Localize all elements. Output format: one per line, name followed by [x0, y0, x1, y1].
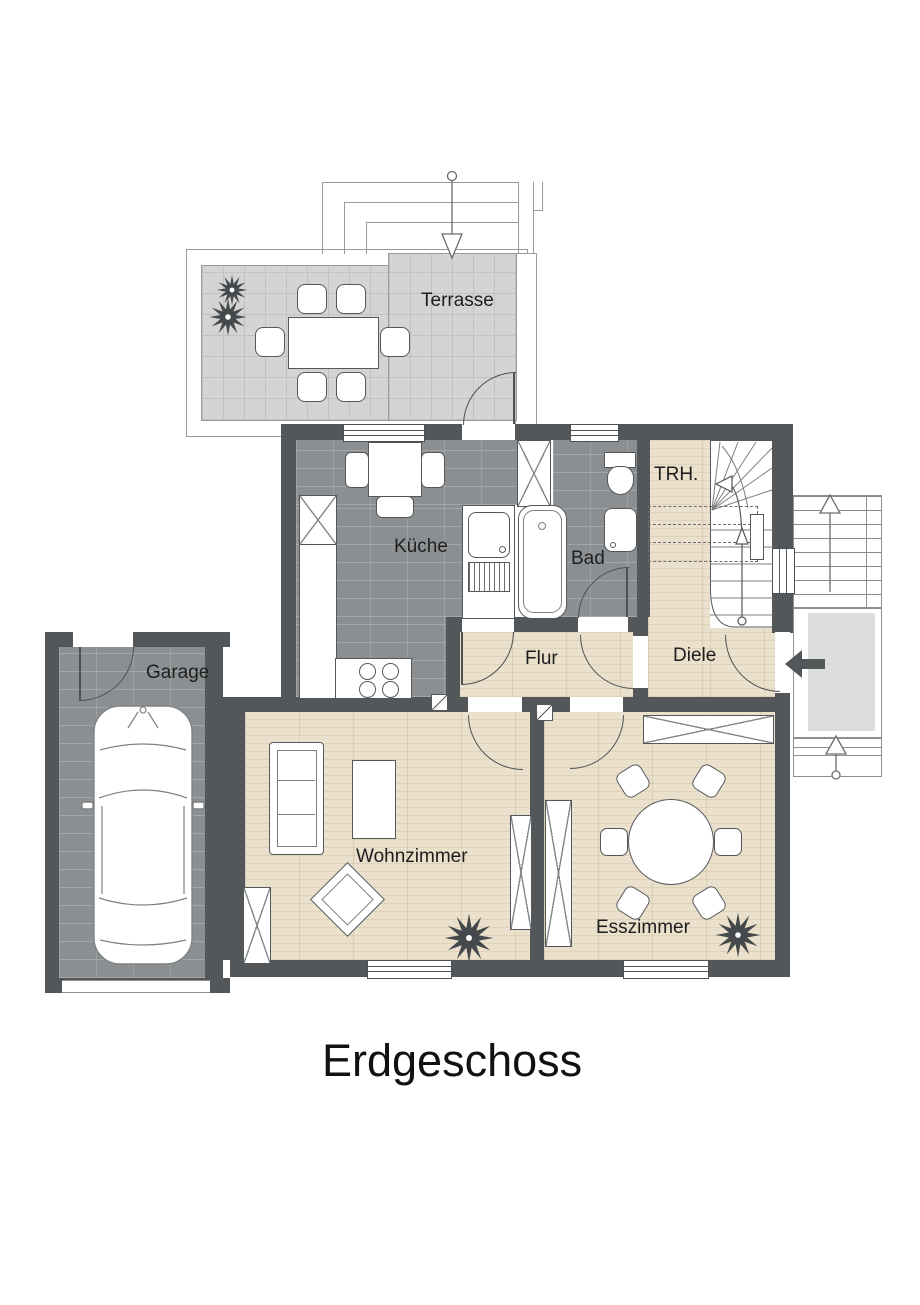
- bad-door-opening: [578, 617, 628, 632]
- page-title: Erdgeschoss: [322, 1035, 582, 1087]
- bathtub-drain: [538, 522, 546, 530]
- bathroom-sink: [604, 508, 637, 552]
- bathroom-sink-drain: [610, 542, 616, 548]
- wall-junction-marker: [431, 694, 448, 711]
- kitchen-tall-cabinet: [299, 495, 337, 545]
- dishwasher: [468, 562, 510, 592]
- room-label-diele: Diele: [673, 645, 716, 667]
- wall: [45, 632, 59, 993]
- kitchen-bad-cabinet: [517, 440, 551, 507]
- exterior-stairs-up-arrow-icon: [816, 492, 844, 596]
- floor-plan-canvas: Terrasse Küche Bad TRH. Diele Flur Garag…: [0, 0, 920, 1305]
- room-label-wohnzimmer: Wohnzimmer: [356, 846, 468, 868]
- interior-stairs-up-arrow-icon: [716, 476, 748, 625]
- wall: [530, 712, 544, 960]
- terrace-steps-direction-arrow-icon: [435, 170, 469, 264]
- plant-icon: [712, 910, 764, 960]
- dining-room-cabinet: [545, 800, 572, 947]
- wall: [223, 697, 245, 960]
- stove-burner: [359, 663, 376, 680]
- terrace-step-edge: [542, 182, 543, 210]
- esszimmer-window: [623, 960, 709, 979]
- sofa-seat: [277, 750, 317, 847]
- terrace-chair: [336, 284, 366, 314]
- sideboard: [643, 715, 774, 744]
- toilet: [607, 466, 634, 495]
- terrace-chair: [297, 284, 327, 314]
- dining-chair: [600, 828, 628, 856]
- bad-window: [570, 424, 619, 442]
- stove-burner: [359, 681, 376, 698]
- room-label-flur: Flur: [525, 648, 558, 670]
- terrace-chair: [255, 327, 285, 357]
- wohnzimmer-door-opening: [468, 697, 522, 712]
- sofa-cushion-line: [277, 814, 315, 815]
- room-label-bad: Bad: [571, 548, 605, 570]
- room-label-kueche: Küche: [394, 536, 448, 558]
- plant-icon: [206, 266, 258, 340]
- kueche-window: [343, 424, 425, 442]
- exterior-staircase-rail: [866, 495, 867, 607]
- kueche-door-leaf: [461, 632, 463, 684]
- exterior-lower-stairs-arrow-icon: [821, 734, 851, 780]
- garage-door-opening: [73, 632, 133, 647]
- terrace-step-edge: [518, 182, 519, 253]
- kueche-door-opening: [462, 617, 514, 632]
- entrance-arrow-icon: [785, 650, 825, 678]
- terrace-chair: [380, 327, 410, 357]
- wall-junction-marker: [536, 704, 553, 721]
- garage-gate: [62, 980, 210, 993]
- sofa-cushion-line: [277, 780, 315, 781]
- dining-table: [628, 799, 714, 885]
- dining-chair: [714, 828, 742, 856]
- room-label-terrasse: Terrasse: [421, 290, 494, 312]
- terrace-step-edge: [533, 210, 543, 211]
- stove-burner: [382, 681, 399, 698]
- wall: [205, 632, 223, 993]
- room-label-esszimmer: Esszimmer: [596, 917, 690, 939]
- diele-door-opening: [633, 636, 648, 688]
- wall: [446, 632, 460, 712]
- coffee-table: [352, 760, 396, 839]
- terrace-table: [288, 317, 379, 369]
- wall: [775, 693, 790, 977]
- kitchen-chair: [376, 496, 414, 518]
- kitchen-sink-drain: [499, 546, 506, 553]
- plant-icon: [441, 912, 497, 964]
- stairwell-window: [772, 548, 795, 594]
- living-room-shelf: [510, 815, 532, 930]
- wall: [633, 688, 648, 712]
- bad-door-leaf: [626, 567, 628, 617]
- terrace-side-strip: [515, 253, 537, 425]
- wohnzimmer-window: [367, 960, 452, 979]
- terrace-chair: [336, 372, 366, 402]
- wall: [281, 440, 296, 712]
- wall: [772, 440, 793, 633]
- stove-burner: [382, 663, 399, 680]
- car-icon: [80, 698, 206, 970]
- esszimmer-door-opening: [570, 697, 623, 712]
- stair-newel: [750, 514, 764, 560]
- kitchen-chair: [345, 452, 369, 488]
- garage-door-leaf: [79, 647, 81, 700]
- terrace-door-leaf: [513, 372, 515, 424]
- interior-staircase: [710, 440, 774, 630]
- room-label-garage: Garage: [146, 662, 209, 684]
- room-label-trh: TRH.: [654, 464, 698, 486]
- terrace-step-edge: [533, 182, 534, 253]
- kitchen-table: [368, 442, 422, 497]
- kitchen-chair: [421, 452, 445, 488]
- living-room-cabinet: [243, 887, 271, 964]
- terrace-chair: [297, 372, 327, 402]
- terrace-door-opening: [462, 424, 515, 440]
